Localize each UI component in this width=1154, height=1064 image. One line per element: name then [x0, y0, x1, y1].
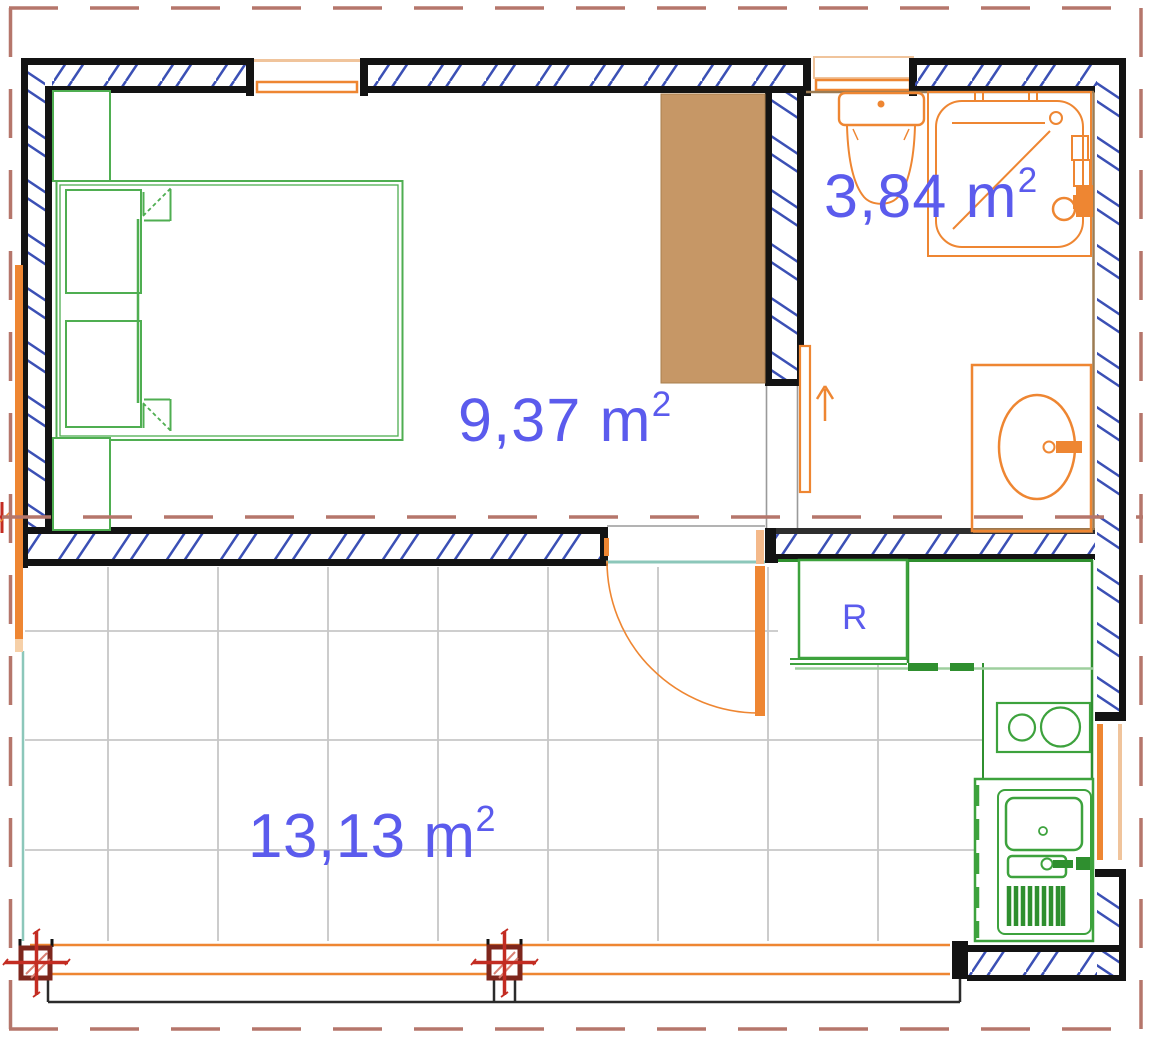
- svg-text:R: R: [842, 598, 867, 637]
- svg-text:13,13 m2: 13,13 m2: [248, 798, 496, 871]
- svg-text:3,84 m2: 3,84 m2: [824, 161, 1038, 230]
- svg-text:9,37 m2: 9,37 m2: [458, 385, 672, 454]
